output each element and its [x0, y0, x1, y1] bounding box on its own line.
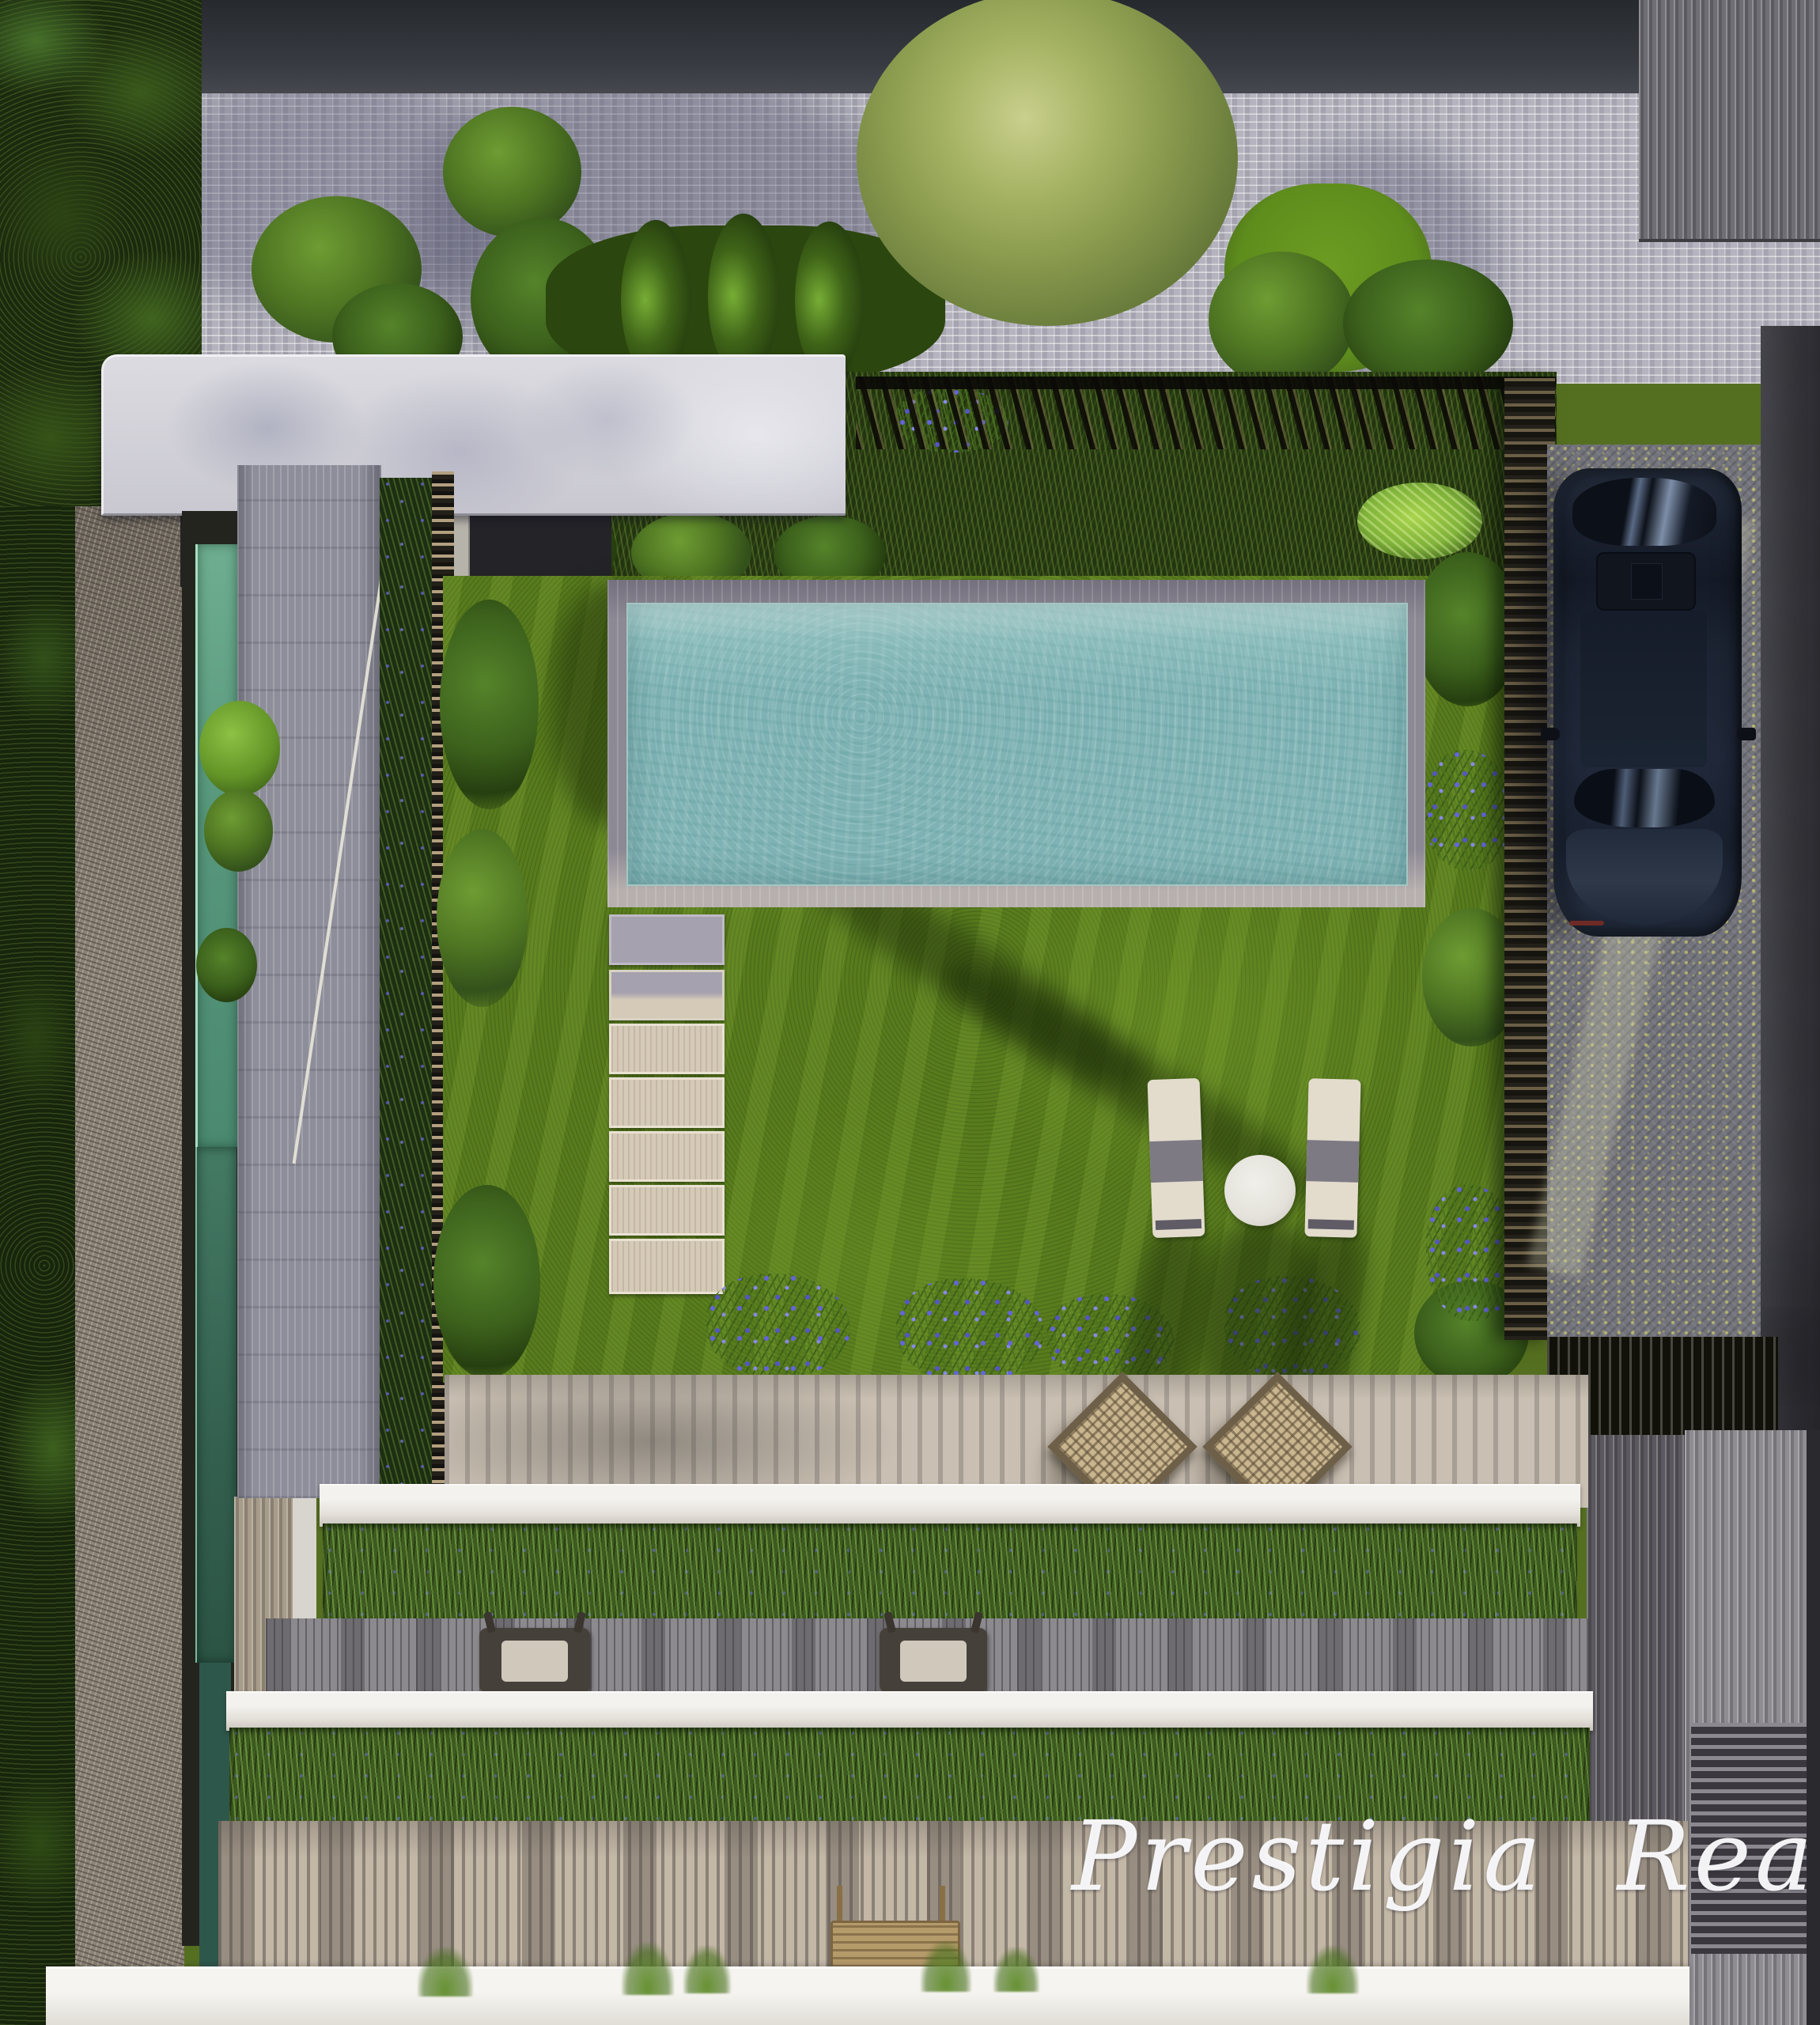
chair-seat: [501, 1641, 568, 1682]
chair-seat: [900, 1641, 967, 1682]
roof-parapet-middle: [226, 1691, 1593, 1731]
swimming-pool-water: [626, 603, 1408, 886]
parked-car: [1550, 467, 1748, 941]
skylight-glass-lower: [195, 1147, 236, 1663]
aerial-render: Prestigia Realty: [0, 0, 1820, 2025]
car-roof-panel: [1596, 552, 1696, 611]
agapanthus-flowers: [896, 1278, 1044, 1383]
grass-tuft: [921, 1941, 971, 1992]
car-sunroof: [1631, 563, 1663, 600]
boundary-wall-right: [1761, 326, 1820, 1435]
stepping-stone: [609, 1077, 725, 1128]
agapanthus-flowers: [706, 1274, 850, 1378]
grass-tuft: [993, 1947, 1039, 1992]
flower-border-left: [380, 478, 433, 1500]
stepping-stone: [609, 914, 725, 965]
car-mirror-left: [1541, 728, 1560, 740]
grass-tuft: [1307, 1946, 1359, 1993]
car-mirror-right: [1737, 728, 1756, 740]
lounger-cushion-band: [1149, 1140, 1203, 1183]
balcony-chair: [479, 1628, 590, 1693]
grass-plants: [440, 600, 539, 809]
shrub: [1343, 259, 1513, 388]
stone-boundary-wall: [75, 506, 184, 2025]
stepping-stone: [609, 1024, 725, 1074]
grass-plants: [437, 829, 528, 1007]
side-structure-gray: [1587, 1435, 1688, 1824]
roof-parapet-lower: [46, 1966, 1689, 2025]
green-roof-planter-upper: [323, 1523, 1577, 1620]
lounger-foot-bar: [1156, 1219, 1201, 1230]
grass-tuft: [622, 1943, 674, 1995]
side-driveway-path: [237, 465, 381, 1498]
bright-shrub: [199, 701, 280, 796]
car-cabin-roof: [1580, 611, 1707, 767]
lounger-foot-bar: [1308, 1219, 1354, 1230]
stepping-stone: [609, 970, 725, 1020]
olive-tree-canopy: [857, 0, 1238, 326]
watermark-text: Prestigia Realty: [1072, 1800, 1820, 1913]
stepping-stone: [609, 1185, 725, 1236]
car-rear-window: [1572, 478, 1716, 546]
bench-post: [940, 1886, 945, 1924]
round-side-table: [1224, 1155, 1296, 1226]
banana-plant: [1357, 483, 1482, 559]
cypress-shrub: [708, 214, 779, 378]
bench-post: [837, 1886, 842, 1924]
balcony-chair: [880, 1628, 987, 1693]
stepping-stone: [609, 1131, 725, 1182]
lounger-cushion-band: [1306, 1140, 1359, 1183]
grass-tuft: [418, 1947, 473, 1997]
grass-plants: [433, 1185, 540, 1379]
watermark-container: Prestigia Realty: [1072, 1789, 1820, 1924]
sun-lounger: [1304, 1078, 1360, 1238]
roof-edge-dark: [1807, 1430, 1820, 2025]
neighbor-roof-right: [1639, 0, 1820, 242]
shrub: [204, 789, 273, 872]
slat-fence-top: [856, 377, 1556, 449]
shrub: [1209, 252, 1355, 388]
car-windshield: [1574, 769, 1715, 827]
stepping-stone: [609, 1239, 725, 1294]
entrance-canopy-roof: [101, 354, 846, 516]
shrub: [196, 928, 257, 1002]
sun-lounger: [1148, 1078, 1205, 1238]
car-light-accent: [1569, 921, 1604, 925]
shrub: [443, 107, 581, 237]
grass-tuft: [683, 1946, 731, 1993]
roof-parapet-upper: [320, 1484, 1580, 1527]
